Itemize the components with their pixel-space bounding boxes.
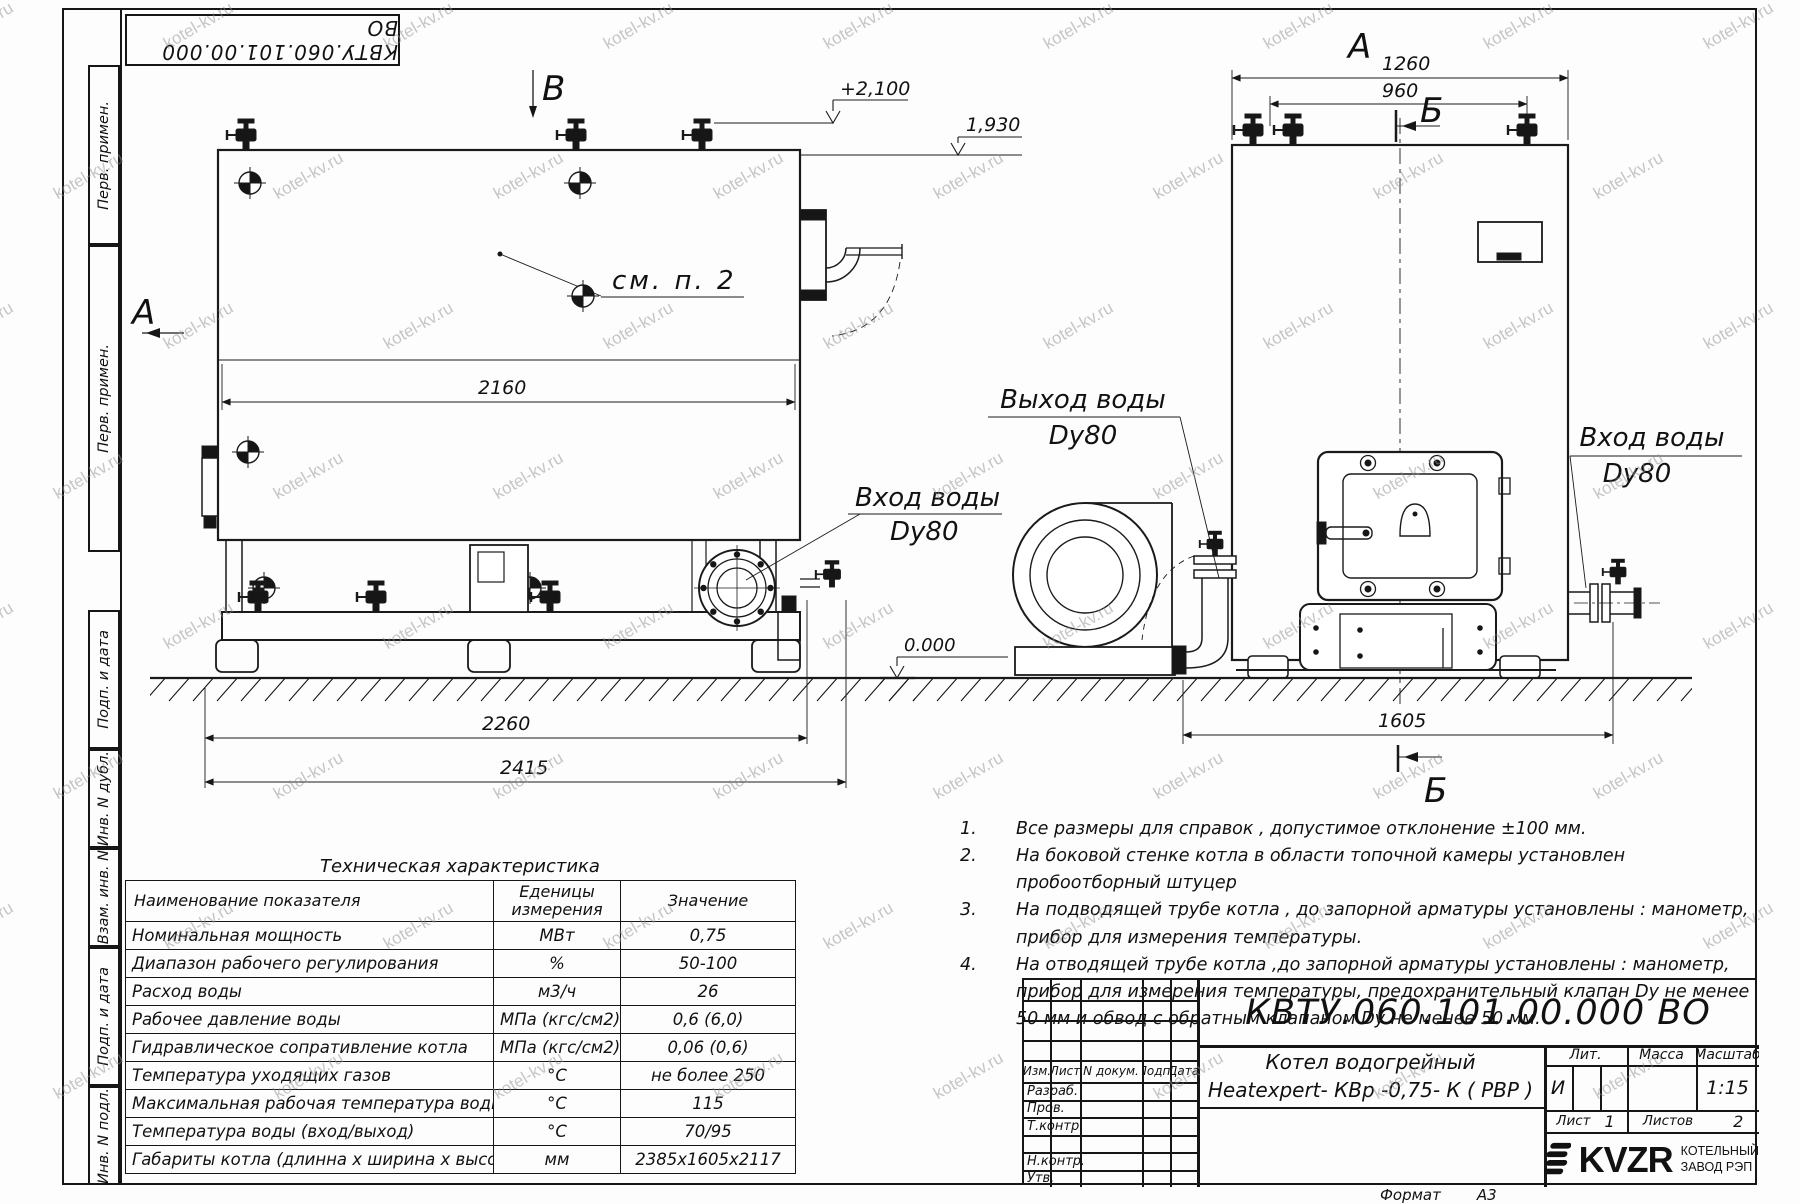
mass-label: Масса [1627, 1045, 1696, 1065]
table-row: Температура воды (вход/выход)°С70/95 [126, 1118, 796, 1146]
tb-col-izm: Изм. [1024, 1060, 1050, 1082]
tb-col-docnum: N докум. [1080, 1060, 1142, 1082]
sheet-top-line [62, 8, 120, 10]
table-row: Температура уходящих газов°Сне более 250 [126, 1062, 796, 1090]
lit-label: Лит. [1544, 1045, 1627, 1065]
dim-1260: 1260 [1382, 53, 1430, 75]
sheet-edge-line [62, 8, 64, 1185]
inlet-flange-icon [694, 545, 780, 631]
section-label-b-bottom: Б [1424, 771, 1447, 811]
tech-table: Наименование показателя Еденицы измерени… [125, 880, 796, 1174]
blower-fan [1013, 503, 1175, 675]
company-name: КОТЕЛЬНЫЙ ЗАВОД РЭП [1681, 1144, 1759, 1175]
level-1930: 1,930 [966, 114, 1020, 136]
strip-vzam-inv: Взам. инв. N [88, 848, 120, 947]
note-item: 2.На боковой стенке котла в области топо… [950, 843, 1750, 897]
table-row: Диапазон рабочего регулирования%50-100 [126, 950, 796, 978]
strip-podp-data-1: Подп. и дата [88, 610, 120, 749]
strip-podp-data-2: Подп. и дата [88, 947, 120, 1086]
door-handle-pin [1317, 522, 1326, 544]
level-2100: +2,100 [840, 78, 910, 100]
inlet-water-dy80-side: Dy80 [890, 517, 959, 547]
tb-razrab: Разраб. [1024, 1082, 1083, 1100]
dim-1605: 1605 [1378, 710, 1426, 732]
outlet-water-dy80: Dy80 [1049, 421, 1118, 451]
table-row: Расход водым3/ч26 [126, 978, 796, 1006]
dim-960: 960 [1382, 80, 1418, 102]
kvzr-logo-icon [1544, 1140, 1571, 1180]
table-row: Рабочее давление водыМПа (кгс/см2)0,6 (6… [126, 1006, 796, 1034]
view-label-a: А [1346, 27, 1371, 67]
table-row: Максимальная рабочая температура воды°С1… [126, 1090, 796, 1118]
watermark-text: kotel-kv.ru [0, 298, 17, 354]
table-row: Номинальная мощностьМВт0,75 [126, 922, 796, 950]
tech-table-header: Наименование показателя Еденицы измерени… [126, 881, 796, 922]
watermark-text: kotel-kv.ru [0, 598, 17, 654]
title-block: Изм. Лист N докум. Подп. Дата Разраб. Пр… [1022, 978, 1757, 1185]
boiler-front-view: 1260 960 А Б [880, 27, 1742, 811]
tech-table-title: Техническая характеристика [125, 856, 795, 880]
inlet-water-label-front: Вход воды [1579, 423, 1724, 453]
water-inlet-assembly [1568, 559, 1660, 622]
note-item: 1.Все размеры для справок , допустимое о… [950, 816, 1750, 843]
strip-perv-primen-1: Перв. примен. [88, 65, 120, 245]
callout-see-p2: см. п. 2 [612, 266, 737, 296]
section-label-b: В [542, 69, 565, 109]
watermark-text: kotel-kv.ru [0, 898, 17, 954]
scale-value: 1:15 [1696, 1065, 1759, 1110]
company-logo-block: KVZR КОТЕЛЬНЫЙ ЗАВОД РЭП [1544, 1132, 1759, 1187]
format-note: Формат А3 [1380, 1186, 1497, 1204]
format-label: Формат [1380, 1186, 1441, 1204]
watermark-text: kotel-kv.ru [0, 0, 17, 54]
sheets-cell: Листов 2 [1627, 1110, 1759, 1132]
tb-col-podp: Подп. [1142, 1060, 1170, 1082]
blueprint-sheet: { "watermark": {"text": "kotel-kv.ru"}, … [0, 0, 1800, 1200]
company-logo-text: KVZR [1579, 1139, 1673, 1181]
section-label-b-top: Б [1420, 91, 1443, 131]
doc-number: КВТУ.060.101.00.000 ВО [1197, 980, 1759, 1045]
dim-2415: 2415 [500, 757, 548, 779]
inlet-water-dy80-front: Dy80 [1603, 459, 1672, 489]
note-item: 3.На подводящей трубе котла , до запорно… [950, 897, 1750, 951]
scale-label: Масштаб [1696, 1045, 1759, 1065]
front-view-base [1236, 604, 1556, 678]
tb-nkontr: Н.контр. [1024, 1152, 1083, 1170]
product-name: Котел водогрейный Heatexpert- КВр -0,75-… [1197, 1045, 1544, 1107]
tb-col-data: Дата [1170, 1060, 1197, 1082]
table-row: Габариты котла (длинна х ширина х высота… [126, 1146, 796, 1174]
furnace-door [1317, 452, 1510, 600]
table-row: Гидравлическое сопративление котлаМПа (к… [126, 1034, 796, 1062]
tb-tkontr: Т.контр. [1024, 1117, 1083, 1135]
tech-characteristics: Техническая характеристика Наименование … [125, 856, 795, 1174]
inlet-water-label-side: Вход воды [855, 483, 1000, 513]
strip-perv-primen-2: Перв. примен. [88, 245, 120, 552]
boiler-drawing: 2160 2260 2415 +2,100 1,930 0.000 В А см… [120, 8, 1757, 820]
level-0000: 0.000 [904, 635, 956, 656]
section-label-a-left: А [130, 293, 155, 333]
dim-2260: 2260 [482, 713, 530, 735]
dim-2160: 2160 [478, 377, 526, 399]
tb-col-list: Лист [1050, 1060, 1080, 1082]
lit-value: И [1544, 1065, 1572, 1110]
strip-inv-podl: Инв. N подл. [88, 1086, 120, 1185]
sheet-cell: Лист 1 [1544, 1110, 1627, 1132]
tb-utv: Утв. [1024, 1170, 1083, 1187]
strip-inv-dubl: Инв. N дубл. [88, 749, 120, 848]
format-value: А3 [1477, 1186, 1497, 1204]
tb-prov: Пров. [1024, 1100, 1083, 1117]
outlet-water-label: Выход воды [1000, 385, 1166, 415]
